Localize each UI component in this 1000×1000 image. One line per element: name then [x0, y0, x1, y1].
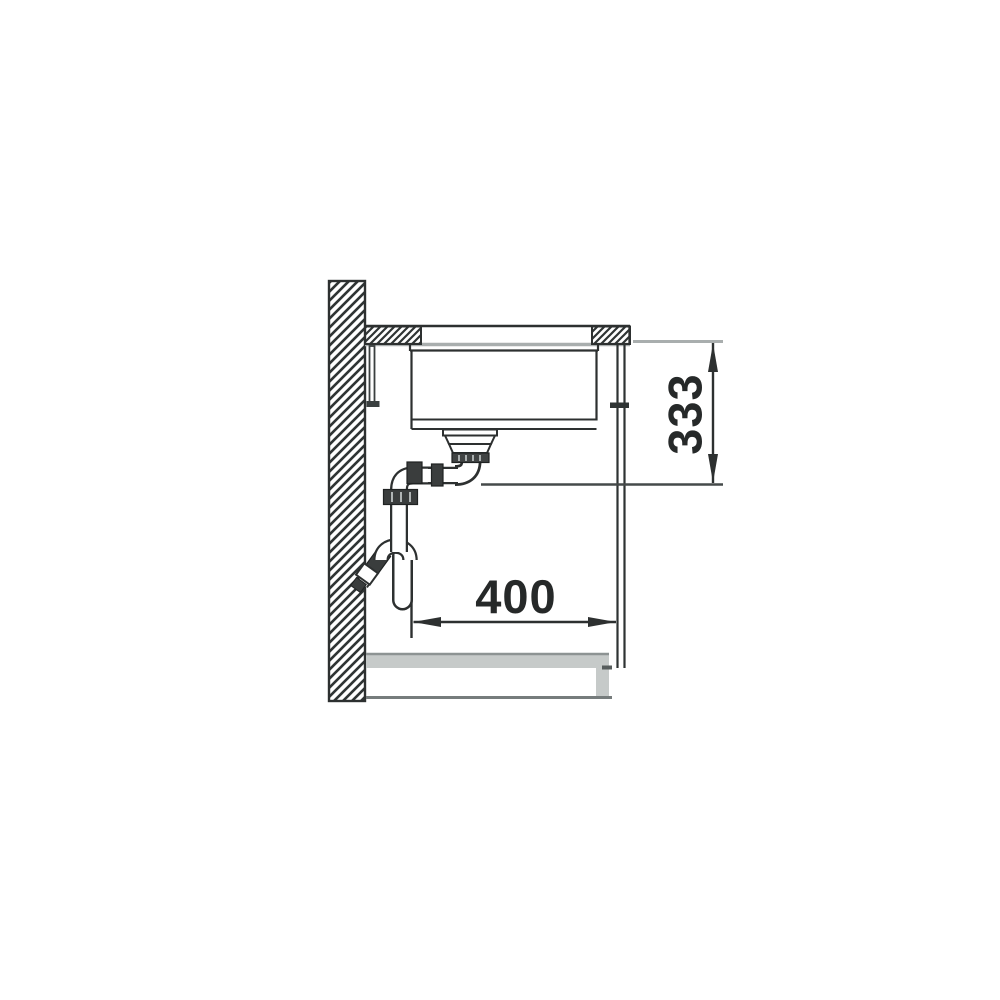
sink-section-drawing: 333 400: [0, 0, 1000, 1000]
pipe-nut-horizontal: [432, 464, 444, 486]
cabinet-plinth-board: [596, 668, 609, 697]
strainer-locknut: [452, 453, 489, 463]
mounting-rail-bar: [370, 346, 375, 403]
strainer-body-upper: [445, 436, 495, 445]
background: [0, 0, 1000, 1000]
countertop-left-hatch: [365, 327, 421, 345]
pipe-nut-large: [384, 490, 418, 505]
cabinet-joint-tick: [610, 403, 629, 409]
mounting-rail-foot: [367, 401, 380, 407]
technical-drawing-page: 333 400: [0, 0, 1000, 1000]
dim-400-label: 400: [475, 570, 556, 623]
dim-333-label: 333: [659, 373, 712, 454]
strainer-body-lower: [449, 444, 491, 453]
pipe-nut-elbow-inlet: [407, 462, 422, 484]
cabinet-bottom-shelf: [366, 654, 609, 669]
cabinet-plinth-notch: [602, 666, 612, 670]
countertop-right-hatch: [592, 327, 630, 345]
wall-hatched: [329, 281, 365, 701]
